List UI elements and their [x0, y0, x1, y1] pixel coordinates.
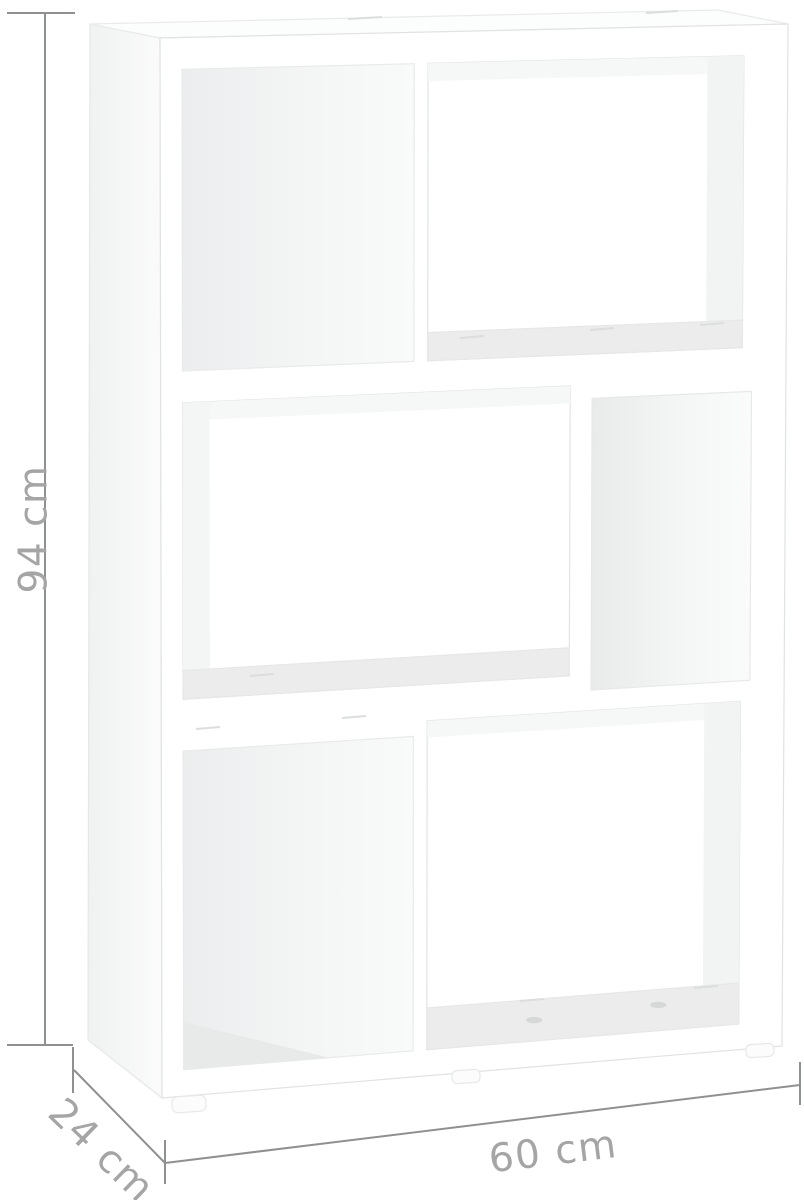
diagram-canvas: 94 cm 24 cm 60 cm — [0, 0, 804, 1200]
front-left-foot — [171, 1095, 206, 1113]
product-dimension-diagram: 94 cm 24 cm 60 cm — [0, 0, 804, 1200]
depth-dimension-label: 24 cm — [39, 1090, 163, 1200]
row1-box-right-side — [706, 56, 744, 350]
height-dimension: 94 cm — [7, 13, 75, 1045]
bookshelf-illustration — [88, 10, 788, 1113]
front-right-foot — [746, 1043, 775, 1058]
row1-box-opening — [428, 56, 744, 361]
width-dimension-line — [165, 1085, 800, 1163]
front-middle-foot — [452, 1069, 481, 1084]
row2-right-cavity — [591, 391, 751, 690]
width-dimension-label: 60 cm — [486, 1122, 619, 1182]
height-dimension-label: 94 cm — [12, 465, 57, 594]
screw-hole — [526, 1017, 542, 1023]
row3-left-cavity — [183, 736, 413, 1069]
row3-box-right-side — [703, 701, 741, 1027]
row2-box-left-side — [183, 402, 210, 700]
row1-left-cavity — [182, 64, 414, 371]
screw-hole — [650, 1002, 666, 1008]
left-side-panel — [88, 24, 162, 1098]
